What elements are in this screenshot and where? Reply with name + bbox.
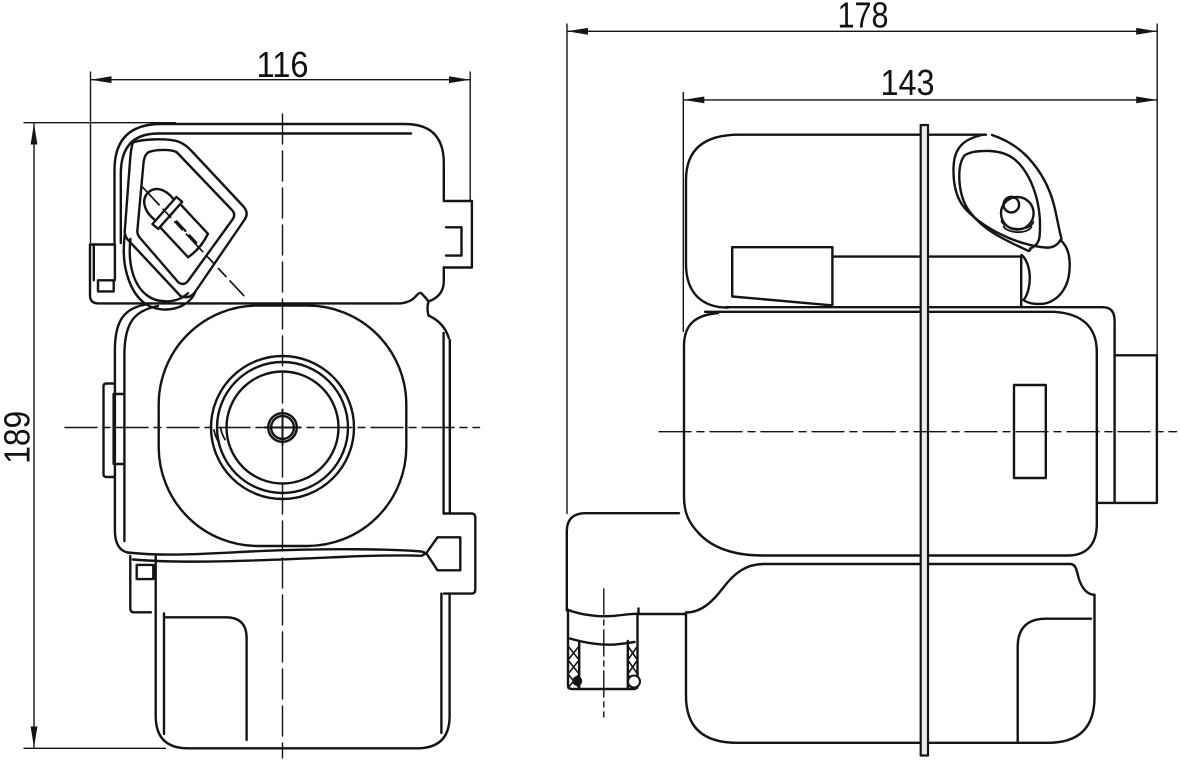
svg-text:178: 178 [838,0,889,36]
svg-text:143: 143 [881,62,935,103]
svg-text:189: 189 [0,411,38,464]
svg-text:116: 116 [257,44,309,85]
